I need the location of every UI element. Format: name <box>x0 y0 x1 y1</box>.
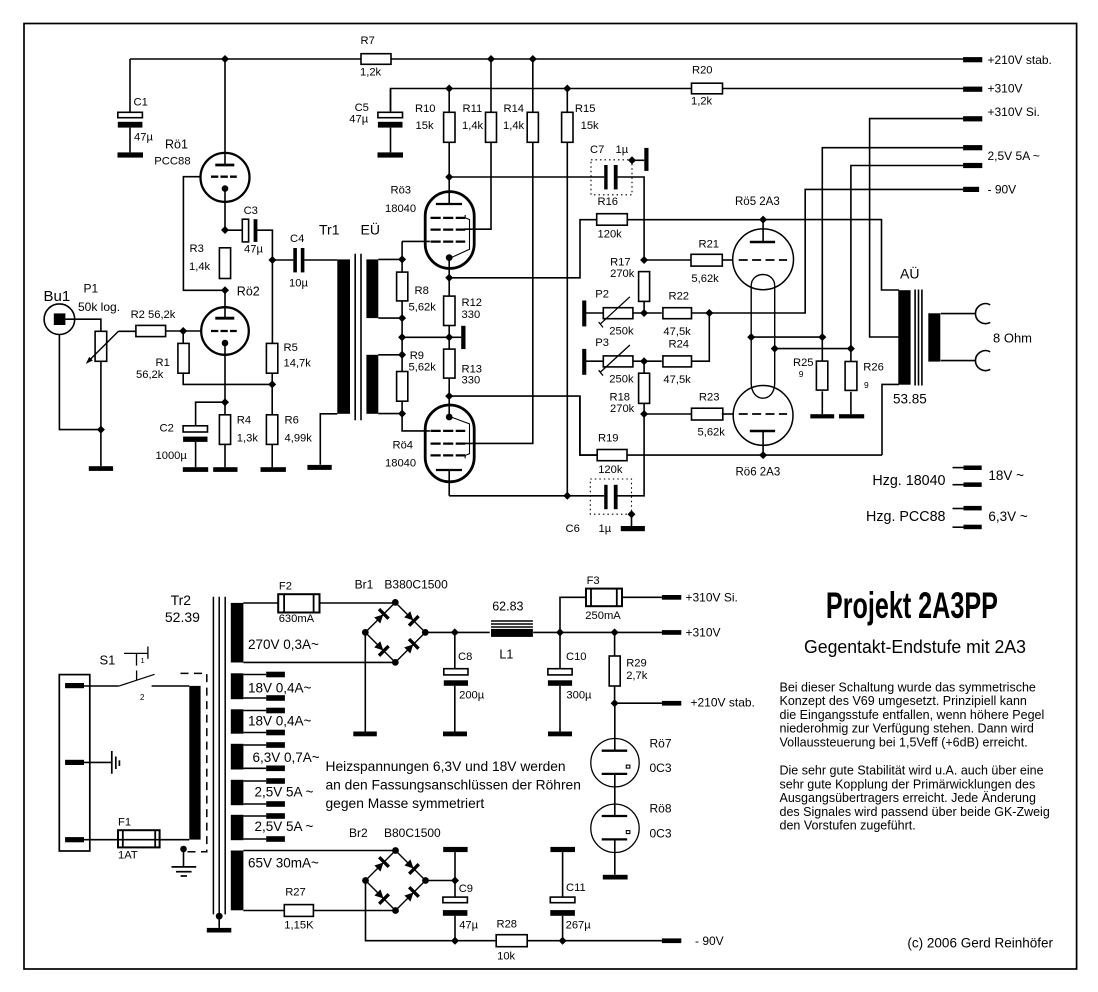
svg-text:250mA: 250mA <box>585 610 621 622</box>
svg-text:R19: R19 <box>598 433 619 445</box>
svg-text:47µ: 47µ <box>134 132 153 144</box>
svg-text:4,99k: 4,99k <box>285 433 313 445</box>
svg-text:120k: 120k <box>598 464 623 476</box>
svg-text:+310V: +310V <box>686 626 721 640</box>
svg-text:9: 9 <box>864 380 869 390</box>
svg-text:Hzg. PCC88: Hzg. PCC88 <box>866 509 946 525</box>
svg-text:L1: L1 <box>499 648 513 662</box>
svg-text:R12: R12 <box>462 297 483 309</box>
svg-text:sehr gute Kopplung der Primärw: sehr gute Kopplung der Primärwicklungen … <box>780 777 1036 791</box>
svg-text:2: 2 <box>140 693 145 702</box>
svg-text:8 Ohm: 8 Ohm <box>993 331 1032 346</box>
svg-text:10µ: 10µ <box>289 278 308 290</box>
svg-text:9: 9 <box>799 369 804 379</box>
svg-text:R21: R21 <box>699 238 720 250</box>
svg-text:5,62k: 5,62k <box>409 362 437 374</box>
svg-text:5,62k: 5,62k <box>691 273 719 285</box>
svg-text:P2: P2 <box>595 289 609 301</box>
svg-text:14,7k: 14,7k <box>284 358 312 370</box>
svg-text:0C3: 0C3 <box>650 761 672 775</box>
svg-text:R18: R18 <box>610 392 631 404</box>
svg-text:6,3V ~: 6,3V ~ <box>988 509 1028 524</box>
svg-text:Rö4: Rö4 <box>393 440 414 452</box>
svg-text:2,5V 5A ~: 2,5V 5A ~ <box>255 819 314 834</box>
svg-text:5,62k: 5,62k <box>409 302 437 314</box>
svg-text:C2: C2 <box>160 423 174 435</box>
svg-text:56,2k: 56,2k <box>136 369 164 381</box>
svg-text:P1: P1 <box>84 282 99 296</box>
svg-text:C3: C3 <box>244 205 258 217</box>
svg-text:Projekt 2A3PP: Projekt 2A3PP <box>826 584 998 626</box>
svg-text:2,5V 5A ~: 2,5V 5A ~ <box>255 785 314 800</box>
svg-text:R24: R24 <box>669 339 690 351</box>
svg-text:R11: R11 <box>463 103 483 115</box>
svg-text:Bu1: Bu1 <box>44 288 71 305</box>
svg-text:R23: R23 <box>699 392 720 404</box>
svg-text:18040: 18040 <box>385 203 416 215</box>
svg-text:EÜ: EÜ <box>361 221 380 238</box>
svg-text:1µ: 1µ <box>616 144 629 156</box>
svg-text:C6: C6 <box>566 523 580 535</box>
svg-text:PCC88: PCC88 <box>154 155 190 167</box>
svg-text:10k: 10k <box>497 950 515 962</box>
svg-text:R16: R16 <box>598 196 619 208</box>
svg-text:15k: 15k <box>581 120 599 132</box>
svg-text:1,2k: 1,2k <box>360 67 382 79</box>
svg-text:53.85: 53.85 <box>893 392 927 407</box>
svg-text:F3: F3 <box>587 575 600 587</box>
svg-text:C4: C4 <box>290 233 304 245</box>
svg-text:270k: 270k <box>610 403 635 415</box>
svg-text:1,4k: 1,4k <box>462 120 484 132</box>
svg-text:270V 0,3A~: 270V 0,3A~ <box>248 637 319 652</box>
svg-text:18040: 18040 <box>385 458 416 470</box>
svg-text:Tr1: Tr1 <box>319 222 340 238</box>
svg-text:50k log.: 50k log. <box>78 300 120 314</box>
svg-text:65V 30mA~: 65V 30mA~ <box>248 856 319 871</box>
svg-text:1,2k: 1,2k <box>691 96 713 108</box>
svg-text:1000µ: 1000µ <box>156 450 188 462</box>
svg-text:1,4k: 1,4k <box>503 120 525 132</box>
svg-text:+310V Si.: +310V Si. <box>988 105 1040 119</box>
svg-text:R22: R22 <box>669 291 690 303</box>
svg-text:R20: R20 <box>692 65 713 77</box>
svg-text:R9: R9 <box>410 350 424 362</box>
svg-text:F1: F1 <box>118 817 131 829</box>
svg-text:B80C1500: B80C1500 <box>384 826 441 840</box>
svg-text:R1: R1 <box>156 357 170 369</box>
svg-text:R8: R8 <box>415 285 429 297</box>
svg-text:an den Fassungsanschlüssen der: an den Fassungsanschlüssen der Röhren <box>326 778 581 793</box>
svg-text:R17: R17 <box>610 256 631 268</box>
svg-text:C5: C5 <box>355 102 369 114</box>
svg-text:0C3: 0C3 <box>650 827 672 841</box>
svg-text:Hzg. 18040: Hzg. 18040 <box>872 473 945 489</box>
svg-text:R27: R27 <box>285 886 306 898</box>
svg-text:den Vorstufen zugeführt.: den Vorstufen zugeführt. <box>780 819 916 833</box>
svg-text:R26: R26 <box>863 362 884 374</box>
svg-text:des Signales wird passend über: des Signales wird passend über beide GK-… <box>780 805 1050 819</box>
svg-text:Bei dieser Schaltung wurde das: Bei dieser Schaltung wurde das symmetris… <box>780 680 1036 694</box>
svg-text:R3: R3 <box>190 243 204 255</box>
svg-text:R29: R29 <box>626 658 647 670</box>
svg-text:AÜ: AÜ <box>900 265 919 282</box>
svg-text:Rö7: Rö7 <box>650 737 672 751</box>
svg-text:R2 56,2k: R2 56,2k <box>131 309 176 321</box>
svg-text:1,15K: 1,15K <box>284 919 314 931</box>
svg-text:1: 1 <box>141 656 145 665</box>
svg-text:2,7k: 2,7k <box>626 670 648 682</box>
svg-text:R13: R13 <box>462 363 483 375</box>
svg-text:+310V: +310V <box>988 82 1023 96</box>
svg-text:- 90V: - 90V <box>695 934 724 948</box>
svg-text:47,5k: 47,5k <box>663 374 691 386</box>
svg-text:250k: 250k <box>609 326 634 338</box>
svg-text:+210V stab.: +210V stab. <box>988 53 1052 67</box>
svg-text:die Eingangsstufe entfallen, w: die Eingangsstufe entfallen, wenn höhere… <box>780 708 1045 722</box>
svg-text:250k: 250k <box>609 374 634 386</box>
svg-text:1,4k: 1,4k <box>189 261 211 273</box>
svg-text:R4: R4 <box>237 415 251 427</box>
svg-text:Tr2: Tr2 <box>171 592 192 608</box>
svg-text:R5: R5 <box>284 342 298 354</box>
svg-text:1,3k: 1,3k <box>237 433 259 445</box>
svg-text:270k: 270k <box>610 268 635 280</box>
svg-text:Br2: Br2 <box>349 826 368 840</box>
svg-text:Vollaussteuerung bei 1,5Veff (: Vollaussteuerung bei 1,5Veff (+6dB) erre… <box>780 735 1028 749</box>
svg-text:C1: C1 <box>134 97 148 109</box>
svg-text:1µ: 1µ <box>599 523 612 535</box>
svg-text:R15: R15 <box>575 103 596 115</box>
svg-text:R7: R7 <box>361 35 375 47</box>
svg-text:gegen Masse symmetriert: gegen Masse symmetriert <box>326 796 485 811</box>
svg-text:330: 330 <box>462 309 481 321</box>
svg-text:R14: R14 <box>504 103 525 115</box>
svg-text:47,5k: 47,5k <box>663 326 691 338</box>
svg-text:Heizspannungen 6,3V und 18V we: Heizspannungen 6,3V und 18V werden <box>326 759 566 774</box>
svg-text:52.39: 52.39 <box>165 609 200 625</box>
svg-text:+310V Si.: +310V Si. <box>686 591 738 605</box>
svg-text:R6: R6 <box>285 415 299 427</box>
svg-text:2,5V 5A ~: 2,5V 5A ~ <box>988 149 1040 163</box>
svg-text:1AT: 1AT <box>118 849 138 861</box>
svg-text:47µ: 47µ <box>459 920 478 932</box>
svg-text:267µ: 267µ <box>566 920 592 932</box>
svg-text:R28: R28 <box>497 918 518 930</box>
svg-text:6,3V 0,7A~: 6,3V 0,7A~ <box>253 750 320 765</box>
svg-text:Die sehr gute Stabilität wird: Die sehr gute Stabilität wird u.A. auch … <box>780 764 1044 778</box>
svg-text:C8: C8 <box>458 651 472 663</box>
svg-text:B380C1500: B380C1500 <box>384 578 448 592</box>
svg-text:18V 0,4A~: 18V 0,4A~ <box>248 680 312 695</box>
svg-text:330: 330 <box>462 375 481 387</box>
svg-text:Rö6 2A3: Rö6 2A3 <box>736 467 781 479</box>
svg-text:S1: S1 <box>100 653 116 668</box>
svg-text:Br1: Br1 <box>355 578 374 592</box>
svg-text:120k: 120k <box>598 229 623 241</box>
svg-text:- 90V: - 90V <box>988 182 1017 196</box>
svg-text:300µ: 300µ <box>566 689 592 701</box>
svg-text:C7: C7 <box>590 144 604 156</box>
svg-text:(c) 2006 Gerd Reinhöfer: (c) 2006 Gerd Reinhöfer <box>907 935 1053 950</box>
svg-text:62.83: 62.83 <box>492 600 523 614</box>
svg-text:Gegentakt-Endstufe mit 2A3: Gegentakt-Endstufe mit 2A3 <box>804 637 1026 657</box>
svg-text:Rö1: Rö1 <box>165 137 188 151</box>
svg-text:F2: F2 <box>279 581 292 593</box>
svg-text:200µ: 200µ <box>459 689 485 701</box>
svg-text:18V ~: 18V ~ <box>988 468 1024 483</box>
svg-text:Rö5 2A3: Rö5 2A3 <box>735 196 780 208</box>
svg-text:niederohmig zur Verfügung steh: niederohmig zur Verfügung stehen. Dann w… <box>780 722 1034 736</box>
svg-text:Konzept des V69 umgesetzt. Pri: Konzept des V69 umgesetzt. Prinzipiell k… <box>780 694 1027 708</box>
svg-text:47µ: 47µ <box>349 114 368 126</box>
svg-text:C11: C11 <box>566 882 586 894</box>
svg-text:C10: C10 <box>566 651 587 663</box>
svg-text:Rö3: Rö3 <box>391 185 412 197</box>
svg-text:5,62k: 5,62k <box>698 427 726 439</box>
svg-text:15k: 15k <box>416 120 434 132</box>
svg-text:C9: C9 <box>459 883 473 895</box>
svg-text:R10: R10 <box>415 103 436 115</box>
svg-text:Rö2: Rö2 <box>237 285 260 299</box>
svg-text:+210V stab.: +210V stab. <box>691 696 755 710</box>
svg-text:630mA: 630mA <box>279 613 315 625</box>
svg-text:Ausgangsübertragers erreicht.: Ausgangsübertragers erreicht. Jede Änder… <box>780 791 1036 805</box>
svg-text:R25: R25 <box>793 357 814 369</box>
svg-text:18V 0,4A~: 18V 0,4A~ <box>248 714 312 729</box>
svg-text:P3: P3 <box>595 337 609 349</box>
svg-text:47µ: 47µ <box>244 243 263 255</box>
svg-text:Rö8: Rö8 <box>650 802 672 816</box>
